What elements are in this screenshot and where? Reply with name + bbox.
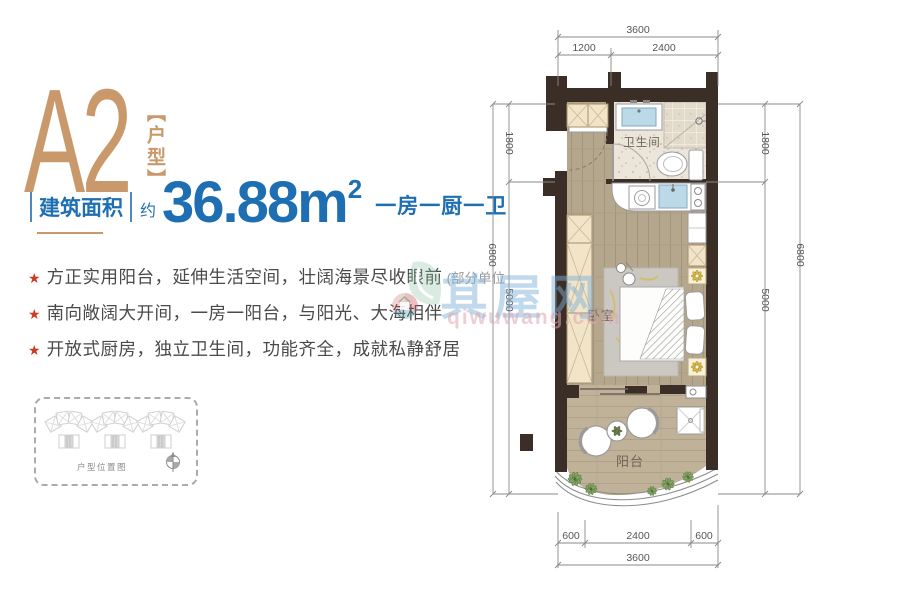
- location-map: 户型位置图: [36, 399, 192, 480]
- feature-item: ★ 方正实用阳台，延伸生活空间，壮阔海景尽收眼前 (部分单位: [28, 264, 505, 289]
- floor-plan: 卫生间 卧室 阳台 3600 1200 2400 600: [478, 18, 838, 584]
- dim-left-total: 6800: [486, 243, 498, 267]
- bathroom-vanity: [616, 100, 662, 130]
- gold-plant-icon: [691, 361, 702, 372]
- accent-underline: [37, 232, 103, 234]
- dim-top-a: 1200: [572, 42, 596, 54]
- floorplan-page: { "unit": { "code": "A2", "type_tag": "【…: [0, 0, 900, 600]
- kitchen-sink-icon: [659, 184, 687, 208]
- wall-corner-left: [546, 76, 567, 131]
- washing-machine-icon: [629, 186, 655, 209]
- stove-icon: [691, 184, 705, 210]
- star-icon: ★: [28, 342, 41, 359]
- area-label: 建筑面积: [30, 192, 132, 222]
- feature-text: 开放式厨房，独立卫生间，功能齐全，成就私静舒居: [47, 336, 461, 361]
- dim-left-a: 1800: [503, 131, 515, 155]
- wall-pilaster: [543, 178, 555, 196]
- feature-item: ★ 南向敞阔大开间，一房一阳台，与阳光、大海相伴: [28, 300, 505, 325]
- bedroom-label: 卧室: [587, 308, 614, 323]
- dim-top-total: 3600: [626, 24, 650, 36]
- wall-balcony-right: [660, 385, 686, 394]
- wall-balcony-post: [625, 386, 647, 394]
- feature-item: ★ 开放式厨房，独立卫生间，功能齐全，成就私静舒居: [28, 336, 505, 361]
- area-superscript: 2: [348, 174, 360, 204]
- star-icon: ★: [28, 306, 41, 323]
- shower-tray: [677, 407, 704, 434]
- star-icon: ★: [28, 270, 41, 287]
- area-value: 36.88m2: [162, 176, 359, 229]
- pillow: [685, 325, 705, 354]
- balcony-label: 阳台: [616, 454, 644, 469]
- feature-text: 南向敞阔大开间，一房一阳台，与阳光、大海相伴: [47, 300, 443, 325]
- dim-bottom-total: 3600: [626, 552, 650, 564]
- location-caption: 户型位置图: [77, 462, 127, 472]
- balcony-table: [607, 421, 627, 441]
- dim-top-b: 2400: [652, 42, 676, 54]
- feature-list: ★ 方正实用阳台，延伸生活空间，壮阔海景尽收眼前 (部分单位 ★ 南向敞阔大开间…: [28, 264, 505, 372]
- compass-icon: [167, 452, 180, 472]
- shower-area: [664, 102, 706, 148]
- dim-right-total: 6800: [794, 243, 806, 267]
- dim-right-b: 5000: [759, 288, 771, 312]
- wall-balcony-left: [567, 385, 579, 398]
- dim-bottom-b: 2400: [626, 530, 650, 542]
- dim-bottom-c: 600: [695, 530, 713, 542]
- entry-cabinet: [567, 104, 608, 127]
- door-leaf: [569, 127, 607, 132]
- wall-neighbor-stub: [520, 434, 533, 451]
- area-row: 建筑面积 约 36.88m2 一房一厨一卫: [30, 176, 507, 229]
- wardrobe: [567, 215, 592, 383]
- pillow: [685, 291, 705, 320]
- decor-lamp: [623, 273, 635, 285]
- building-outline: [45, 411, 185, 448]
- gold-plant-icon: [691, 270, 702, 281]
- dim-bottom-a: 600: [562, 530, 580, 542]
- decor-lamp: [617, 264, 626, 273]
- kitchen-counter: [612, 183, 706, 211]
- dim-right-a: 1800: [759, 131, 771, 155]
- bathroom-label: 卫生间: [623, 135, 661, 149]
- wall-top: [546, 88, 718, 102]
- wall-stub: [608, 72, 621, 102]
- feature-text: 方正实用阳台，延伸生活空间，壮阔海景尽收眼前: [47, 264, 443, 289]
- wall-right: [706, 88, 718, 470]
- wall-left: [555, 171, 567, 472]
- area-approx: 约: [140, 197, 156, 221]
- dim-left-b: 5000: [503, 288, 515, 312]
- location-map-box: 户型位置图: [34, 397, 198, 486]
